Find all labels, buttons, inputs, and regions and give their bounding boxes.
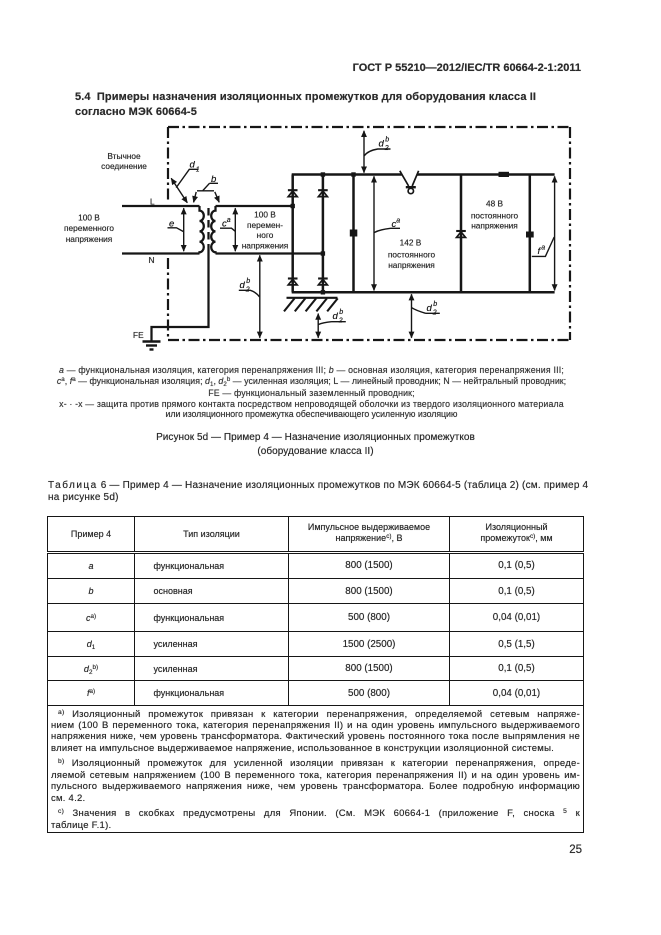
svg-text:b: b — [246, 278, 250, 285]
svg-text:2: 2 — [338, 318, 343, 325]
svg-text:48 В: 48 В — [486, 199, 504, 209]
svg-text:2: 2 — [384, 145, 389, 152]
svg-text:b: b — [211, 174, 216, 185]
svg-text:а: а — [541, 245, 545, 252]
svg-text:N: N — [149, 255, 155, 265]
svg-text:d: d — [427, 303, 433, 314]
svg-text:постоянного: постоянного — [471, 211, 519, 221]
svg-text:2: 2 — [245, 286, 250, 293]
svg-text:100 В: 100 В — [254, 210, 276, 220]
svg-text:перемен-: перемен- — [247, 220, 283, 230]
svg-text:2: 2 — [432, 309, 437, 316]
svg-text:142 В: 142 В — [400, 238, 422, 248]
svg-text:ного: ного — [257, 230, 274, 240]
svg-text:b: b — [385, 137, 389, 144]
svg-text:L: L — [150, 197, 155, 207]
svg-text:b: b — [339, 309, 343, 316]
svg-text:b: b — [433, 301, 437, 308]
svg-text:напряжения: напряжения — [471, 221, 518, 231]
svg-text:d: d — [240, 280, 246, 291]
svg-text:d: d — [333, 311, 339, 322]
svg-text:100 В: 100 В — [78, 213, 100, 223]
svg-text:а: а — [227, 217, 231, 224]
svg-text:напряжения: напряжения — [388, 260, 435, 270]
svg-text:а: а — [396, 217, 400, 224]
svg-text:соединение: соединение — [101, 161, 147, 171]
svg-text:постоянного: постоянного — [388, 250, 436, 260]
svg-text:Втычное: Втычное — [107, 151, 141, 161]
svg-text:FE: FE — [133, 330, 144, 340]
svg-text:напряжения: напряжения — [242, 241, 289, 251]
svg-text:переменного: переменного — [64, 223, 114, 233]
svg-text:d: d — [379, 139, 385, 150]
svg-text:1: 1 — [196, 167, 200, 174]
svg-text:напряжения: напряжения — [66, 234, 113, 244]
svg-text:d: d — [190, 160, 196, 171]
svg-text:e: e — [169, 219, 174, 230]
